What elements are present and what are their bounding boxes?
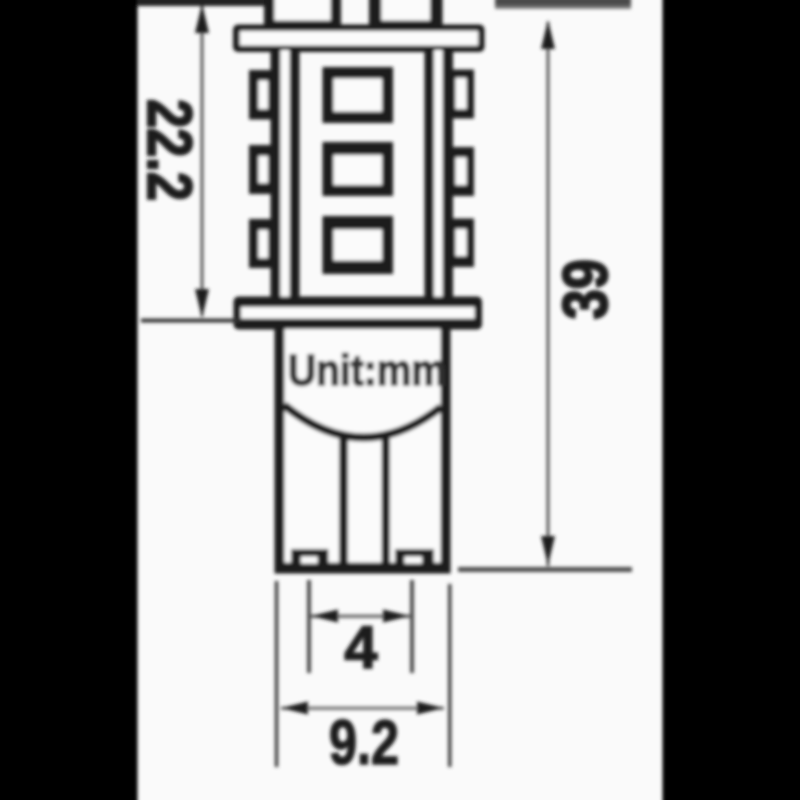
svg-text:39: 39 <box>551 259 621 320</box>
svg-text:9.2: 9.2 <box>329 708 399 778</box>
svg-text:22.2: 22.2 <box>134 99 204 201</box>
svg-text:Unit:mm: Unit:mm <box>288 346 446 395</box>
svg-text:4: 4 <box>344 614 378 681</box>
